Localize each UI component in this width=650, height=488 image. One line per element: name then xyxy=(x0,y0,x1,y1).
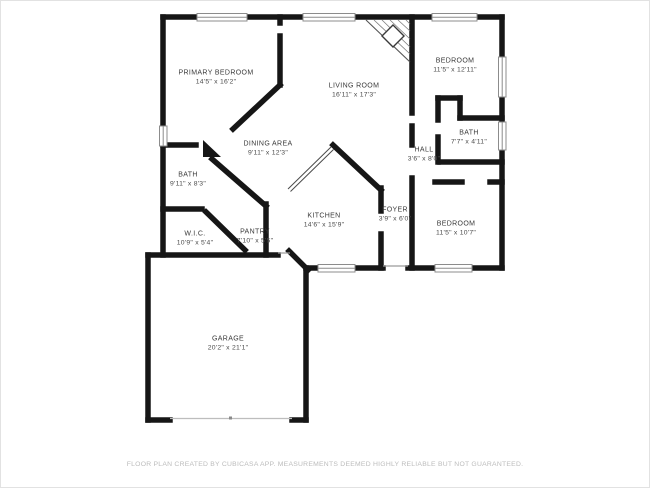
floor-plan-page: PRIMARY BEDROOM 14'5" x 16'2" LIVING ROO… xyxy=(0,0,650,488)
corner-fireplace-symbol xyxy=(366,20,410,62)
primary-bedroom-diagonal-wall xyxy=(233,85,280,129)
walls-group xyxy=(148,17,502,420)
doors-group xyxy=(170,147,408,420)
kitchen-door-leaf xyxy=(288,147,331,189)
wic-pantry-diagonal-wall xyxy=(206,212,245,250)
garage-door-tick xyxy=(229,417,232,420)
floor-plan-drawing xyxy=(0,0,650,488)
kitchen-diagonal-wall xyxy=(333,145,381,190)
kitchen-door-leaf-inner xyxy=(291,150,334,192)
dining-diagonal-wall xyxy=(212,159,266,206)
dining-door-wedge xyxy=(203,140,221,157)
footer-disclaimer: FLOOR PLAN CREATED BY CUBICASA APP. MEAS… xyxy=(0,461,650,468)
